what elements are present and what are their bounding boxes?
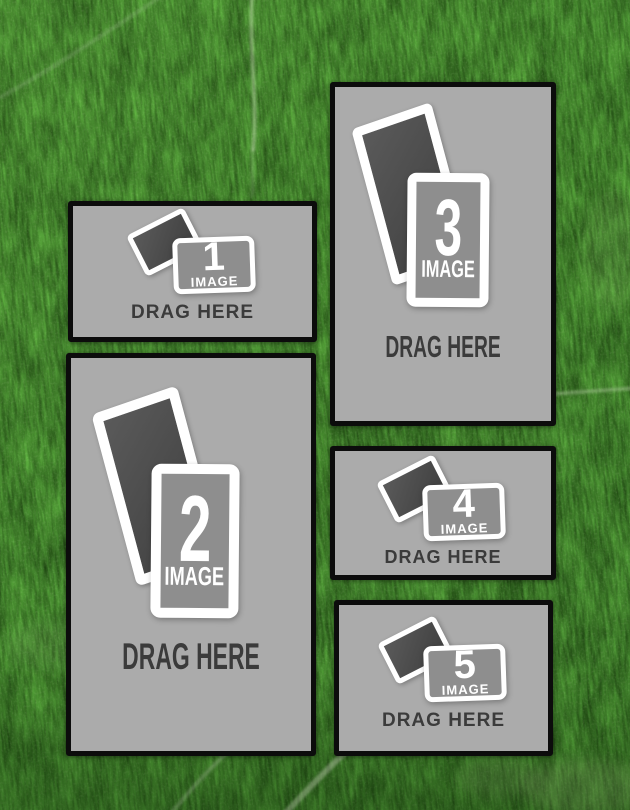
image-slot-2[interactable]: 2 IMAGE DRAG HERE (66, 353, 316, 756)
front-photo-shape: 5 IMAGE (423, 644, 507, 703)
front-photo-shape: 1 IMAGE (172, 236, 256, 295)
image-slot-3[interactable]: 3 IMAGE DRAG HERE (330, 82, 556, 426)
photo-stack-icon: 5 IMAGE (378, 618, 510, 706)
image-slot-4[interactable]: 4 IMAGE DRAG HERE (330, 446, 556, 580)
photo-stack-icon: 3 IMAGE (363, 113, 523, 321)
image-label: IMAGE (441, 682, 489, 697)
photo-stack-icon: 1 IMAGE (127, 210, 259, 298)
drag-here-label: DRAG HERE (131, 302, 254, 324)
drag-here-label: DRAG HERE (122, 636, 260, 678)
image-slot-1[interactable]: 1 IMAGE DRAG HERE (68, 201, 317, 342)
image-label: IMAGE (190, 274, 238, 289)
image-slot-5[interactable]: 5 IMAGE DRAG HERE (334, 600, 553, 756)
image-label: IMAGE (421, 258, 475, 282)
image-label: IMAGE (441, 521, 489, 536)
photo-stack-icon: 2 IMAGE (104, 394, 279, 630)
slot-number-label: 3 (434, 198, 462, 259)
collage-canvas: 1 IMAGE DRAG HERE 2 IMAGE DRAG HERE 3 IM… (0, 0, 630, 810)
front-photo-shape: 4 IMAGE (422, 483, 506, 542)
front-photo-shape: 3 IMAGE (406, 173, 489, 308)
photo-stack-icon: 4 IMAGE (377, 457, 509, 545)
image-label: IMAGE (164, 562, 224, 589)
slot-number-label: 2 (178, 493, 211, 565)
drag-here-label: DRAG HERE (385, 329, 500, 365)
slot-number-label: 4 (452, 489, 475, 521)
front-photo-shape: 2 IMAGE (150, 464, 239, 619)
slot-number-label: 5 (453, 650, 476, 682)
slot-number-label: 1 (202, 242, 225, 274)
drag-here-label: DRAG HERE (382, 710, 505, 732)
drag-here-label: DRAG HERE (384, 547, 501, 568)
